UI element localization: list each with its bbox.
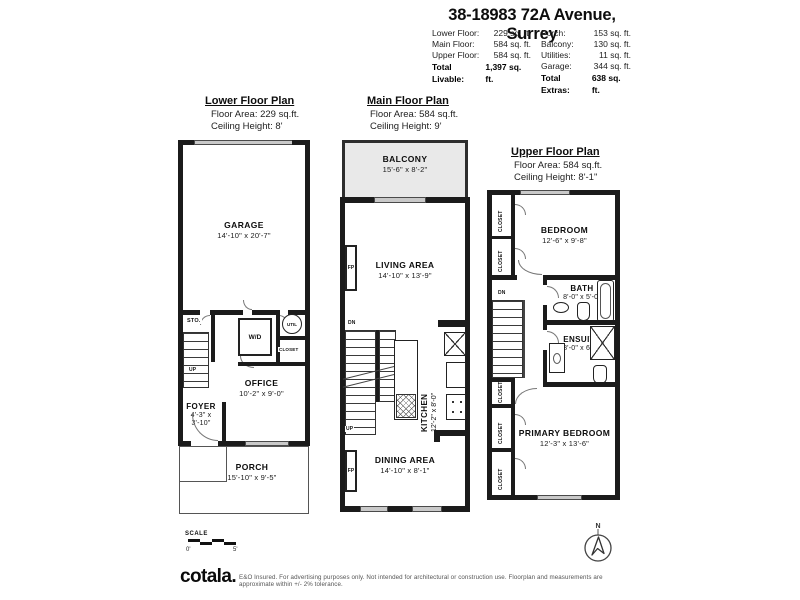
- stat-value: 344 sq. ft.: [594, 61, 631, 72]
- livable-stats: Lower Floor: 229 sq. ft. Main Floor: 584…: [432, 28, 531, 73]
- stairs: [492, 300, 523, 378]
- window: [412, 506, 442, 512]
- room-dims: 12'-2" x 8'-0": [431, 340, 438, 432]
- room-name: BEDROOM: [517, 225, 612, 235]
- upper-floor-plan: CLOSET CLOSET BEDROOM 12'-6" x 9'-8" BAT…: [487, 190, 620, 500]
- fireplace-label: FP: [348, 468, 354, 474]
- wall: [543, 305, 547, 330]
- room-name: PRIMARY BEDROOM: [517, 428, 612, 438]
- upper-floor-area: Floor Area: 584 sq.ft.: [514, 160, 602, 171]
- stairs-dn-label: DN: [347, 320, 357, 326]
- door-arc: [518, 260, 542, 275]
- upper-floor-title: Upper Floor Plan: [511, 146, 600, 158]
- stat-row: Balcony: 130 sq. ft.: [541, 39, 631, 50]
- washer-dryer: W/D: [238, 318, 272, 356]
- ensuite-vanity: [549, 343, 565, 373]
- bath-toilet: [577, 302, 590, 321]
- brand-logo: cotala.: [180, 566, 236, 588]
- wall: [222, 402, 226, 446]
- stat-value: 153 sq. ft.: [594, 28, 631, 39]
- fireplace: FP: [345, 450, 357, 492]
- door-arc: [515, 204, 526, 215]
- main-floor-area: Floor Area: 584 sq.ft.: [370, 109, 458, 120]
- window: [537, 495, 582, 500]
- stat-row: Main Floor: 584 sq. ft.: [432, 39, 531, 50]
- stat-value: 229 sq. ft.: [494, 28, 531, 39]
- room-garage: GARAGE 14'-10" x 20'-7": [188, 220, 300, 240]
- room-name: BALCONY: [358, 154, 452, 164]
- wall: [280, 336, 305, 340]
- bath-sink: [553, 302, 569, 313]
- room-name: DINING AREA: [360, 455, 450, 465]
- bathtub: [597, 280, 614, 322]
- entry-door-arc: [192, 414, 218, 441]
- stat-total-row: Total Extras: 638 sq. ft.: [541, 72, 631, 84]
- shower: [590, 326, 615, 360]
- wall: [547, 320, 620, 325]
- main-floor-title: Main Floor Plan: [367, 95, 449, 107]
- room-dims: 10'-2" x 9'-0": [218, 389, 305, 398]
- lower-floor-title: Lower Floor Plan: [205, 95, 294, 107]
- stat-label: Utilities:: [541, 50, 571, 61]
- washer-dryer-label: W/D: [249, 334, 262, 341]
- closet-label: CLOSET: [278, 347, 299, 352]
- room-dims: 12'-6" x 9'-8": [517, 236, 612, 245]
- closet-label: CLOSET: [497, 383, 505, 403]
- room-name: GARAGE: [188, 220, 300, 230]
- stat-value: 584 sq. ft.: [494, 50, 531, 61]
- stat-value: 130 sq. ft.: [594, 39, 631, 50]
- fireplace-label: FP: [348, 265, 354, 271]
- stairs-up-label: UP: [188, 367, 197, 373]
- upper-floor-ceiling: Ceiling Height: 8'-1": [514, 172, 597, 183]
- room-name: FOYER: [180, 402, 222, 411]
- stat-label: Lower Floor:: [432, 28, 479, 39]
- fireplace: FP: [345, 245, 357, 291]
- lower-floor-plan: GARAGE 14'-10" x 20'-7" STO. UP W/D UTIL…: [178, 140, 310, 516]
- closet-label: CLOSET: [497, 458, 505, 490]
- wall: [543, 382, 620, 387]
- stair-edge: [523, 300, 525, 378]
- wall: [487, 448, 515, 452]
- kitchen-sink: [444, 332, 466, 356]
- room-balcony: BALCONY 15'-6" x 8'-2": [358, 154, 452, 174]
- room-dims: 14'-10" x 8'-1": [360, 466, 450, 475]
- scale-segment: [212, 539, 224, 542]
- room-dims: 14'-10" x 20'-7": [188, 231, 300, 240]
- scale-label: SCALE: [185, 531, 208, 537]
- stat-value: 11 sq. ft.: [599, 50, 631, 61]
- window: [360, 506, 388, 512]
- scale-segment: [224, 542, 236, 545]
- stairs-up: [183, 332, 209, 388]
- stat-value: 584 sq. ft.: [494, 39, 531, 50]
- room-name: LIVING AREA: [360, 260, 450, 270]
- wall: [511, 378, 515, 495]
- room-dims: 12'-3" x 13'-6": [517, 439, 612, 448]
- stat-total-label: Total Extras:: [541, 72, 592, 84]
- scale-bar: [188, 539, 236, 545]
- compass-icon: N: [578, 518, 618, 566]
- wall: [492, 236, 511, 239]
- room-dims: 15'-10" x 9'-5": [206, 473, 298, 482]
- balcony-door: [374, 197, 426, 203]
- stat-row: Lower Floor: 229 sq. ft.: [432, 28, 531, 39]
- room-dims: 15'-6" x 8'-2": [358, 165, 452, 174]
- fridge: [446, 362, 466, 388]
- stairs-dn-label: DN: [497, 290, 507, 296]
- stat-row: Porch: 153 sq. ft.: [541, 28, 631, 39]
- room-name: OFFICE: [218, 378, 305, 388]
- room-porch: PORCH 15'-10" x 9'-5": [206, 462, 298, 482]
- stat-label: Porch:: [541, 28, 566, 39]
- scale-end: 5': [233, 547, 237, 553]
- wall: [183, 310, 200, 315]
- scale-segment: [200, 542, 212, 545]
- floorplan-sheet: 38-18983 72A Avenue, Surrey Lower Floor:…: [0, 0, 800, 600]
- stat-label: Upper Floor:: [432, 50, 479, 61]
- extras-stats: Porch: 153 sq. ft. Balcony: 130 sq. ft. …: [541, 28, 631, 84]
- lower-floor-area: Floor Area: 229 sq.ft.: [211, 109, 299, 120]
- room-dims: 14'-10" x 13'-9": [360, 271, 450, 280]
- room-living: LIVING AREA 14'-10" x 13'-9": [360, 260, 450, 280]
- door-arc: [515, 458, 526, 469]
- stat-total-value: 638 sq. ft.: [592, 72, 631, 84]
- wall: [487, 404, 515, 408]
- stat-label: Balcony:: [541, 39, 574, 50]
- lower-floor-ceiling: Ceiling Height: 8': [211, 121, 283, 132]
- wall: [434, 430, 440, 442]
- wall: [438, 320, 470, 327]
- compass-north-label: N: [595, 523, 600, 530]
- main-floor-plan: BALCONY 15'-6" x 8'-2" FP LIVING AREA 14…: [340, 140, 470, 512]
- closet-label: CLOSET: [497, 244, 505, 272]
- vanity-sink: [553, 353, 561, 364]
- room-bedroom: BEDROOM 12'-6" x 9'-8": [517, 225, 612, 245]
- wall: [238, 362, 305, 366]
- door-arc: [515, 388, 537, 404]
- storage-label: STO.: [186, 318, 202, 324]
- stat-row: Utilities: 11 sq. ft.: [541, 50, 631, 61]
- wall: [305, 140, 310, 446]
- stairs-up-label: UP: [345, 426, 354, 432]
- door-arc: [515, 248, 526, 259]
- main-floor-ceiling: Ceiling Height: 9': [370, 121, 442, 132]
- wall: [211, 310, 215, 362]
- room-dining: DINING AREA 14'-10" x 8'-1": [360, 455, 450, 475]
- island-sink: [396, 394, 416, 418]
- window: [520, 190, 570, 195]
- closet-label: CLOSET: [497, 202, 505, 232]
- room-name: KITCHEN: [420, 340, 429, 432]
- wall: [178, 140, 183, 446]
- room-office: OFFICE 10'-2" x 9'-0": [218, 378, 305, 398]
- door-arc: [243, 300, 252, 310]
- scale-start: 0': [186, 547, 190, 553]
- stat-label: Main Floor:: [432, 39, 475, 50]
- stat-row: Upper Floor: 584 sq. ft.: [432, 50, 531, 61]
- wall: [543, 350, 547, 386]
- room-name: PORCH: [206, 462, 298, 472]
- disclaimer-text: E&O Insured. For advertising purposes on…: [239, 574, 631, 588]
- door-arc: [515, 414, 526, 425]
- wall: [487, 275, 517, 280]
- garage-door: [194, 140, 294, 145]
- utility-label: UTIL: [287, 322, 297, 327]
- closet-label: CLOSET: [497, 414, 505, 444]
- stove: [446, 394, 466, 420]
- stat-total-value: 1,397 sq. ft.: [485, 61, 531, 73]
- stat-row: Garage: 344 sq. ft.: [541, 61, 631, 72]
- stat-label: Garage:: [541, 61, 572, 72]
- scale-segment: [188, 539, 200, 542]
- bathtub-inner: [600, 283, 611, 319]
- stat-total-label: Total Livable:: [432, 61, 485, 73]
- room-kitchen: KITCHEN 12'-2" x 8'-0": [419, 340, 439, 432]
- compass-needle: [592, 537, 604, 555]
- utility-tank: UTIL: [282, 314, 302, 334]
- room-primary-bedroom: PRIMARY BEDROOM 12'-3" x 13'-6": [517, 428, 612, 448]
- stat-total-row: Total Livable: 1,397 sq. ft.: [432, 61, 531, 73]
